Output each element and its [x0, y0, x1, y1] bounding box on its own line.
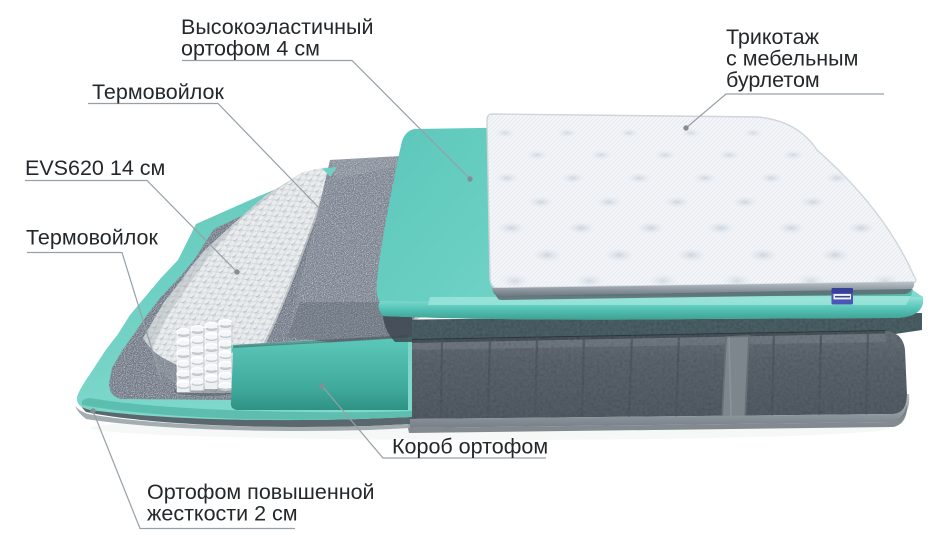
svg-text:бурлетом: бурлетом — [726, 68, 820, 92]
svg-text:Термовойлок: Термовойлок — [26, 226, 158, 250]
svg-text:с мебельным: с мебельным — [726, 47, 858, 71]
svg-text:Термовойлок: Термовойлок — [92, 80, 224, 104]
svg-text:Трикотаж: Трикотаж — [726, 25, 820, 49]
svg-text:Ортофом повышенной: Ортофом повышенной — [147, 480, 375, 504]
svg-text:ортофом 4 см: ортофом 4 см — [181, 37, 320, 61]
svg-text:жесткости 2 см: жесткости 2 см — [147, 502, 298, 526]
svg-text:EVS620 14 см: EVS620 14 см — [25, 156, 165, 180]
svg-text:Короб ортофом: Короб ортофом — [392, 435, 548, 459]
svg-text:Высокоэластичный: Высокоэластичный — [181, 15, 374, 39]
